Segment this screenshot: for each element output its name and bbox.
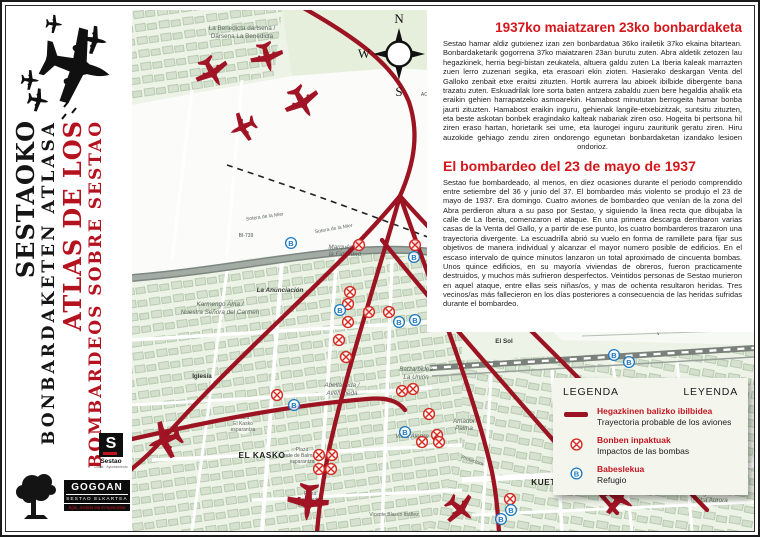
title-basque-line1: SESTAOKO <box>14 120 38 278</box>
falling-bombs-icon <box>62 102 76 119</box>
sestao-council-logo: S Sestao Udala · Ayuntamiento <box>94 433 128 469</box>
bomb-impact-icon <box>334 335 345 346</box>
refuge-icon <box>400 427 411 438</box>
title-spanish-line2: BOMBARDEOS SOBRE SESTAO <box>88 120 105 468</box>
refuge-icon <box>506 505 517 516</box>
bomb-impact-icon <box>364 307 375 318</box>
map-label: El Sol <box>495 338 513 345</box>
map-label: La Benedicta dartsena / <box>209 25 276 32</box>
bomb-impact-icon <box>417 437 428 448</box>
bomb-impact-icon <box>408 384 419 395</box>
legend-impacts-eu: Bonben inpaktuak <box>597 435 689 445</box>
gogoan-logo-name: GOGOAN <box>66 483 128 493</box>
bomb-impact-icon <box>341 352 352 363</box>
sidebar-logos: S Sestao Udala · Ayuntamiento GOGOAN SES… <box>8 433 130 525</box>
bomb-impact-icon <box>505 494 516 505</box>
refuge-icon <box>394 317 405 328</box>
bomb-impact-icon <box>326 464 337 475</box>
basque-body: Sestao hamar aldiz gutxienez izan zen bo… <box>443 39 742 152</box>
legend-item-refuge: Babeslekua Refugio <box>563 464 738 485</box>
bomb-impact-icon <box>354 240 365 251</box>
legend-trajectory-eu: Hegazkinen balizko ibilbidea <box>597 406 731 416</box>
refuge-icon <box>286 238 297 249</box>
map-label: La Anunciación <box>257 287 304 294</box>
bomb-impact-icon <box>343 317 354 328</box>
legend-impacts-es: Impactos de las bombas <box>597 446 689 456</box>
spanish-title: El bombardeo del 23 de mayo de 1937 <box>443 158 742 174</box>
gogoan-logo-tagline: Egia, Justizia eta Erreparazioa <box>64 504 130 511</box>
bomb-impact-icon <box>272 390 283 401</box>
legend-header-es: LEYENDA <box>683 386 738 398</box>
title-basque-line2: BONBARDAKETEN ATLASA <box>41 120 58 445</box>
legend-header-eu: LEGENDA <box>563 386 619 398</box>
legend-refuge-es: Refugio <box>597 475 644 485</box>
map-label: Dársena La Benedicta <box>211 33 274 40</box>
trajectory-line-icon <box>563 406 589 417</box>
refuge-icon <box>289 400 300 411</box>
bomb-impact-icon <box>563 435 589 452</box>
bomb-impact-icon <box>327 450 338 461</box>
sestao-logo-name: Sestao <box>94 458 128 465</box>
title-spanish-line1: ATLAS DE LOS <box>61 120 85 331</box>
bomb-impact-icon <box>434 437 445 448</box>
legend-trajectory-es: Trayectoria probable de los aviones <box>597 417 731 427</box>
map-label: esparantza <box>231 427 256 433</box>
legend-item-trajectory: Hegazkinen balizko ibilbidea Trayectoria… <box>563 406 738 427</box>
map-label: Karmengo Ama / <box>196 301 244 308</box>
spanish-body: Sestao fue bombardeado, al menos, en die… <box>443 178 742 309</box>
basque-title: 1937ko maiatzaren 23ko bonbardaketa <box>443 20 742 35</box>
sestao-logo-sub: Udala · Ayuntamiento <box>94 465 128 469</box>
gogoan-logo-sub: SESTAO ELKARTEA <box>66 494 128 501</box>
map-label: La Aurora <box>700 497 728 504</box>
bomb-impact-icon <box>410 240 421 251</box>
bomb-impact-icon <box>345 287 356 298</box>
map-label: La Unión <box>403 374 429 381</box>
map-label: BI-739 <box>239 233 254 239</box>
bomb-impact-icon <box>314 450 325 461</box>
map-label: Batzarbidea <box>399 366 433 373</box>
atlas-page: SESTAOKO BONBARDAKETEN ATLASA ATLAS DE L… <box>0 0 760 537</box>
bomb-impact-icon <box>384 307 395 318</box>
map-label: Amador <box>452 418 476 425</box>
tree-icon <box>14 471 58 523</box>
map-label: Vicente Blasco Ibáñez <box>369 512 419 518</box>
map-label: Palma <box>455 425 473 432</box>
map-label: Iglesia <box>192 373 212 380</box>
legend-item-impacts: Bonben inpaktuak Impactos de las bombas <box>563 435 738 456</box>
refuge-icon <box>409 252 420 263</box>
refuge-icon <box>609 350 620 361</box>
text-panel: 1937ko maiatzaren 23ko bonbardaketa Sest… <box>427 10 754 332</box>
gogoan-logo: GOGOAN SESTAO ELKARTEA Egia, Justizia et… <box>64 480 130 511</box>
sestao-logo-letter: S <box>106 435 117 452</box>
bomb-impact-icon <box>314 464 325 475</box>
compass-north-label: N <box>394 11 404 26</box>
refuge-icon <box>624 357 635 368</box>
refuge-icon <box>496 514 507 525</box>
refuge-icon <box>563 464 589 481</box>
legend-box: LEGENDA LEYENDA Hegazkinen balizko ibilb… <box>553 378 748 495</box>
bomb-impact-icon <box>424 409 435 420</box>
refuge-icon <box>410 315 421 326</box>
map-label: Nuestra Señora del Carmen <box>181 309 260 316</box>
compass-south-label: S <box>395 84 402 99</box>
sidebar: SESTAOKO BONBARDAKETEN ATLASA ATLAS DE L… <box>8 8 130 531</box>
legend-refuge-eu: Babeslekua <box>597 464 644 474</box>
compass-west-label: W <box>358 46 371 61</box>
bomb-impact-icon <box>397 386 408 397</box>
refuge-icon <box>335 305 346 316</box>
map-label: esparantza <box>290 459 315 465</box>
bomber-silhouette-icon <box>8 8 130 120</box>
